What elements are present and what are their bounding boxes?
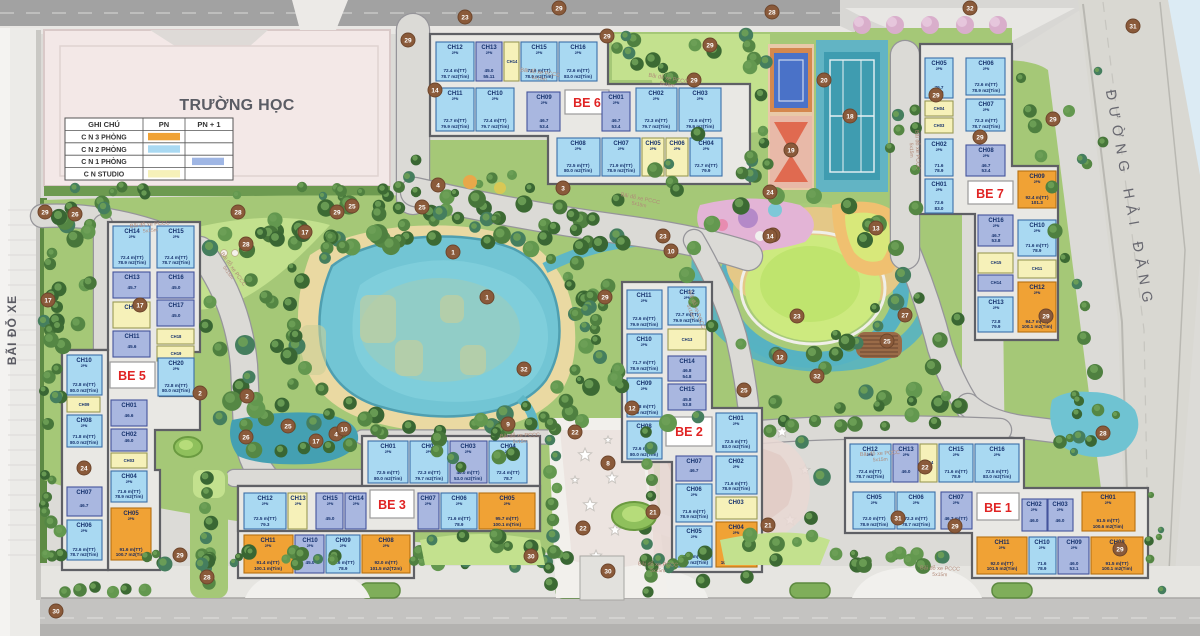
svg-text:46.0: 46.0 bbox=[1030, 518, 1039, 523]
svg-text:72.6 m(TT): 72.6 m(TT) bbox=[689, 118, 712, 123]
svg-text:79.9 m2(Tim): 79.9 m2(Tim) bbox=[441, 124, 469, 129]
svg-text:46.0: 46.0 bbox=[125, 438, 134, 443]
svg-text:CH11: CH11 bbox=[124, 334, 140, 340]
svg-text:2PN: 2PN bbox=[1071, 546, 1078, 550]
svg-text:53.4: 53.4 bbox=[540, 124, 549, 129]
svg-text:17: 17 bbox=[44, 298, 52, 305]
svg-text:32: 32 bbox=[813, 374, 821, 381]
svg-text:71.6 m(TT): 71.6 m(TT) bbox=[448, 516, 471, 521]
svg-text:BE 1: BE 1 bbox=[984, 501, 1012, 515]
svg-text:2PN: 2PN bbox=[983, 154, 990, 158]
svg-text:2PN: 2PN bbox=[691, 493, 698, 497]
svg-text:2PN: 2PN bbox=[641, 387, 648, 391]
svg-text:2PN: 2PN bbox=[993, 224, 1000, 228]
svg-text:25: 25 bbox=[883, 339, 891, 346]
svg-text:80.0 m2(Tim): 80.0 m2(Tim) bbox=[70, 440, 98, 445]
svg-text:72.5 m(TT): 72.5 m(TT) bbox=[254, 516, 277, 521]
svg-text:2PN: 2PN bbox=[1034, 180, 1041, 184]
svg-text:2PN: 2PN bbox=[486, 51, 493, 55]
svg-text:CH13: CH13 bbox=[124, 275, 140, 281]
svg-text:45.0: 45.0 bbox=[326, 516, 335, 521]
svg-text:10: 10 bbox=[340, 427, 348, 434]
svg-text:C N 2 PHÒNG: C N 2 PHÒNG bbox=[81, 145, 127, 154]
svg-text:PN + 1: PN + 1 bbox=[197, 120, 220, 129]
svg-text:24: 24 bbox=[80, 466, 88, 473]
svg-text:GHI CHÚ: GHI CHÚ bbox=[88, 120, 120, 129]
svg-text:78.9 m2(Tim): 78.9 m2(Tim) bbox=[972, 88, 1000, 93]
svg-text:BE 2: BE 2 bbox=[675, 425, 703, 439]
svg-text:32: 32 bbox=[966, 6, 974, 13]
svg-text:78.9: 78.9 bbox=[952, 474, 961, 479]
svg-text:2PN: 2PN bbox=[983, 67, 990, 71]
svg-text:72.7 m(TT): 72.7 m(TT) bbox=[444, 118, 467, 123]
svg-text:2PN: 2PN bbox=[465, 450, 472, 454]
svg-text:28: 28 bbox=[203, 575, 211, 582]
svg-text:83.0 m2(Tim): 83.0 m2(Tim) bbox=[722, 444, 750, 449]
svg-text:2PN: 2PN bbox=[126, 480, 133, 484]
svg-text:72.6 m(TT): 72.6 m(TT) bbox=[975, 82, 998, 87]
svg-text:21: 21 bbox=[649, 510, 657, 517]
svg-text:2PN: 2PN bbox=[128, 517, 135, 521]
svg-text:46.0: 46.0 bbox=[1056, 518, 1065, 523]
svg-text:29: 29 bbox=[706, 43, 714, 50]
svg-text:72.3 m(TT): 72.3 m(TT) bbox=[905, 516, 928, 521]
svg-text:29: 29 bbox=[555, 6, 563, 13]
svg-text:27: 27 bbox=[901, 313, 909, 320]
svg-text:28: 28 bbox=[234, 210, 242, 217]
svg-text:2PN: 2PN bbox=[1039, 546, 1046, 550]
svg-text:C N 3 PHÒNG: C N 3 PHÒNG bbox=[81, 132, 127, 141]
svg-text:CH11: CH11 bbox=[1032, 266, 1043, 271]
svg-text:45.0: 45.0 bbox=[172, 285, 181, 290]
svg-text:46.8: 46.8 bbox=[683, 368, 692, 373]
svg-text:BE 3: BE 3 bbox=[378, 498, 406, 512]
svg-text:2PN: 2PN bbox=[1031, 508, 1038, 512]
svg-text:30: 30 bbox=[604, 569, 612, 576]
svg-text:2PN: 2PN bbox=[383, 544, 390, 548]
svg-text:CH15: CH15 bbox=[679, 387, 695, 393]
svg-text:CH13: CH13 bbox=[682, 337, 693, 342]
svg-text:29: 29 bbox=[690, 78, 698, 85]
svg-text:4: 4 bbox=[436, 183, 440, 190]
svg-text:CH07: CH07 bbox=[76, 490, 92, 496]
svg-text:CH16: CH16 bbox=[168, 275, 184, 281]
svg-text:29: 29 bbox=[601, 295, 609, 302]
svg-text:2PN: 2PN bbox=[452, 97, 459, 101]
svg-text:17: 17 bbox=[301, 230, 309, 237]
svg-text:26: 26 bbox=[71, 212, 79, 219]
svg-text:CH14: CH14 bbox=[679, 359, 695, 365]
svg-text:78.9 m2(Tim): 78.9 m2(Tim) bbox=[680, 514, 708, 519]
svg-text:100.1 m(Tim): 100.1 m(Tim) bbox=[254, 566, 282, 571]
svg-text:78.9 m2(Tim): 78.9 m2(Tim) bbox=[115, 494, 143, 499]
svg-text:83.0: 83.0 bbox=[935, 206, 944, 211]
svg-text:29: 29 bbox=[1116, 547, 1124, 554]
svg-text:46.7: 46.7 bbox=[80, 503, 89, 508]
svg-text:14: 14 bbox=[431, 88, 439, 95]
svg-text:29: 29 bbox=[176, 553, 184, 560]
svg-text:29: 29 bbox=[333, 210, 341, 217]
svg-text:72.3 m(TT): 72.3 m(TT) bbox=[645, 118, 668, 123]
svg-text:80.0 m2(Tim): 80.0 m2(Tim) bbox=[162, 388, 190, 393]
svg-text:5x15m: 5x15m bbox=[650, 568, 665, 575]
svg-text:53.4: 53.4 bbox=[982, 168, 991, 173]
svg-text:5x15m: 5x15m bbox=[932, 572, 947, 579]
svg-text:2PN: 2PN bbox=[353, 502, 360, 506]
svg-text:2PN: 2PN bbox=[295, 502, 302, 506]
svg-text:53.0 m2(Tim): 53.0 m2(Tim) bbox=[454, 476, 482, 481]
svg-text:CH09: CH09 bbox=[79, 402, 90, 407]
svg-text:78.7 m2(Tim): 78.7 m2(Tim) bbox=[972, 124, 1000, 129]
svg-text:45.0: 45.0 bbox=[172, 313, 181, 318]
svg-text:100.1 m2(Tim): 100.1 m2(Tim) bbox=[1102, 566, 1133, 571]
svg-text:100.1 m2(Tim): 100.1 m2(Tim) bbox=[1022, 324, 1053, 329]
svg-text:46.0: 46.0 bbox=[902, 469, 911, 474]
svg-text:2PN: 2PN bbox=[81, 364, 88, 368]
svg-text:22: 22 bbox=[571, 430, 579, 437]
svg-text:46.7: 46.7 bbox=[690, 468, 699, 473]
svg-text:TRƯỜNG HỌC: TRƯỜNG HỌC bbox=[179, 95, 294, 114]
svg-text:78.9 m2(Tim): 78.9 m2(Tim) bbox=[630, 366, 658, 371]
svg-text:100.1 m(Tim): 100.1 m(Tim) bbox=[493, 522, 521, 527]
svg-text:2PN: 2PN bbox=[575, 147, 582, 151]
svg-text:CH03: CH03 bbox=[728, 500, 744, 506]
svg-text:72.3 m(TT): 72.3 m(TT) bbox=[418, 470, 441, 475]
svg-text:2PN: 2PN bbox=[983, 108, 990, 112]
svg-text:C N 1 PHÒNG: C N 1 PHÒNG bbox=[81, 157, 127, 166]
svg-text:CH15: CH15 bbox=[991, 260, 1002, 265]
svg-text:80.0 m2(Tim): 80.0 m2(Tim) bbox=[374, 476, 402, 481]
svg-text:2: 2 bbox=[198, 391, 202, 398]
svg-text:CH14: CH14 bbox=[507, 59, 518, 64]
svg-text:2PN: 2PN bbox=[733, 422, 740, 426]
svg-text:29: 29 bbox=[1042, 314, 1050, 321]
svg-text:2PN: 2PN bbox=[993, 306, 1000, 310]
svg-text:2PN: 2PN bbox=[953, 501, 960, 505]
svg-text:2PN: 2PN bbox=[913, 501, 920, 505]
svg-text:2PN: 2PN bbox=[903, 453, 910, 457]
svg-text:72.3 m(TT): 72.3 m(TT) bbox=[975, 118, 998, 123]
svg-text:45.6: 45.6 bbox=[128, 344, 137, 349]
svg-text:101.3: 101.3 bbox=[1031, 200, 1043, 205]
svg-text:CH03: CH03 bbox=[124, 458, 135, 463]
svg-text:2PN: 2PN bbox=[1057, 508, 1064, 512]
svg-text:25: 25 bbox=[348, 204, 356, 211]
svg-text:1: 1 bbox=[485, 295, 489, 302]
svg-text:30: 30 bbox=[527, 554, 535, 561]
svg-text:2PN: 2PN bbox=[733, 465, 740, 469]
svg-text:79.9 m2(Tim): 79.9 m2(Tim) bbox=[630, 322, 658, 327]
svg-text:53.1: 53.1 bbox=[1070, 566, 1079, 571]
svg-text:22: 22 bbox=[921, 465, 929, 472]
svg-text:2PN: 2PN bbox=[456, 502, 463, 506]
svg-text:78.7 m2(Tim): 78.7 m2(Tim) bbox=[902, 522, 930, 527]
svg-text:CH19: CH19 bbox=[171, 351, 182, 356]
svg-text:92.0 m(TT): 92.0 m(TT) bbox=[375, 560, 398, 565]
svg-text:55.11: 55.11 bbox=[483, 74, 495, 79]
svg-text:29: 29 bbox=[976, 135, 984, 142]
svg-text:2PN: 2PN bbox=[653, 97, 660, 101]
svg-text:46.6: 46.6 bbox=[125, 413, 134, 418]
svg-text:28: 28 bbox=[768, 10, 776, 17]
svg-text:78.7 m2(Tim): 78.7 m2(Tim) bbox=[441, 74, 469, 79]
svg-text:CH17: CH17 bbox=[168, 303, 184, 309]
svg-text:2PN: 2PN bbox=[129, 235, 136, 239]
svg-text:79.7 m2(Tim): 79.7 m2(Tim) bbox=[415, 476, 443, 481]
svg-text:2PN: 2PN bbox=[618, 147, 625, 151]
svg-text:78.9: 78.9 bbox=[935, 168, 944, 173]
svg-text:CH18: CH18 bbox=[171, 334, 182, 339]
svg-text:45.7: 45.7 bbox=[128, 285, 137, 290]
svg-text:78.9: 78.9 bbox=[455, 522, 464, 527]
svg-text:79.7 m2(Tim): 79.7 m2(Tim) bbox=[481, 124, 509, 129]
svg-text:2PN: 2PN bbox=[1034, 229, 1041, 233]
svg-text:19: 19 bbox=[787, 148, 795, 155]
svg-text:83.0 m2(Tim): 83.0 m2(Tim) bbox=[564, 74, 592, 79]
svg-text:2PN: 2PN bbox=[697, 97, 704, 101]
svg-text:101.5 m2(Tim): 101.5 m2(Tim) bbox=[987, 566, 1018, 571]
svg-text:30: 30 bbox=[52, 609, 60, 616]
svg-text:53.8: 53.8 bbox=[683, 402, 692, 407]
svg-text:2PN: 2PN bbox=[340, 544, 347, 548]
svg-text:2PN: 2PN bbox=[994, 453, 1001, 457]
svg-text:CH03: CH03 bbox=[934, 123, 945, 128]
svg-text:53.4: 53.4 bbox=[612, 124, 621, 129]
svg-text:2PN: 2PN bbox=[999, 546, 1006, 550]
svg-text:18: 18 bbox=[846, 114, 854, 121]
svg-text:80.0 m2(Tim): 80.0 m2(Tim) bbox=[70, 388, 98, 393]
svg-text:78.9 m2(Tim): 78.9 m2(Tim) bbox=[722, 486, 750, 491]
svg-text:78.9 m2(Tim): 78.9 m2(Tim) bbox=[118, 260, 146, 265]
svg-text:22: 22 bbox=[579, 526, 587, 533]
svg-text:BÃI ĐỖ XE: BÃI ĐỖ XE bbox=[4, 295, 19, 365]
svg-text:24: 24 bbox=[766, 190, 774, 197]
svg-text:46.7: 46.7 bbox=[540, 118, 549, 123]
svg-text:2PN: 2PN bbox=[674, 147, 681, 151]
svg-text:72.6 m(TT): 72.6 m(TT) bbox=[567, 68, 590, 73]
svg-text:5x15m: 5x15m bbox=[908, 143, 915, 158]
svg-text:79.7 m2(Tim): 79.7 m2(Tim) bbox=[642, 124, 670, 129]
svg-text:83.0 m2(Tim): 83.0 m2(Tim) bbox=[983, 474, 1011, 479]
svg-text:2PN: 2PN bbox=[936, 67, 943, 71]
svg-text:C N STUDIO: C N STUDIO bbox=[84, 172, 125, 179]
svg-text:72.4 m(TT): 72.4 m(TT) bbox=[497, 470, 520, 475]
svg-text:2PN: 2PN bbox=[385, 450, 392, 454]
svg-text:BE 7: BE 7 bbox=[976, 187, 1004, 201]
svg-text:2PN: 2PN bbox=[691, 535, 698, 539]
svg-text:2PN: 2PN bbox=[81, 424, 88, 428]
svg-text:45.0: 45.0 bbox=[485, 68, 494, 73]
svg-text:2PN: 2PN bbox=[452, 51, 459, 55]
svg-text:12: 12 bbox=[628, 406, 636, 413]
svg-text:78.9: 78.9 bbox=[1038, 566, 1047, 571]
svg-text:26: 26 bbox=[242, 435, 250, 442]
svg-text:2PN: 2PN bbox=[307, 544, 314, 548]
svg-text:72.8 m(TT): 72.8 m(TT) bbox=[73, 382, 96, 387]
svg-text:2: 2 bbox=[245, 394, 249, 401]
svg-text:91.4 m(TT): 91.4 m(TT) bbox=[257, 560, 280, 565]
svg-text:79.3: 79.3 bbox=[261, 522, 270, 527]
svg-text:21: 21 bbox=[764, 523, 772, 530]
svg-text:2PN: 2PN bbox=[871, 501, 878, 505]
svg-text:CH01: CH01 bbox=[121, 403, 137, 409]
svg-text:2PN: 2PN bbox=[265, 544, 272, 548]
svg-text:78.9: 78.9 bbox=[1033, 248, 1042, 253]
svg-text:PN: PN bbox=[159, 120, 169, 129]
svg-text:23: 23 bbox=[659, 234, 667, 241]
svg-text:17: 17 bbox=[312, 439, 320, 446]
svg-text:2PN: 2PN bbox=[936, 188, 943, 192]
svg-text:20: 20 bbox=[820, 78, 828, 85]
svg-text:72.5 m(TT): 72.5 m(TT) bbox=[377, 470, 400, 475]
svg-text:78.9 m2(Tim): 78.9 m2(Tim) bbox=[607, 168, 635, 173]
svg-text:25: 25 bbox=[284, 424, 292, 431]
svg-text:46.7: 46.7 bbox=[612, 118, 621, 123]
svg-text:3: 3 bbox=[561, 186, 565, 193]
svg-text:2PN: 2PN bbox=[173, 367, 180, 371]
svg-text:2PN: 2PN bbox=[641, 343, 648, 347]
svg-text:8: 8 bbox=[606, 461, 610, 468]
svg-text:5x15m: 5x15m bbox=[513, 439, 528, 446]
svg-text:CH04: CH04 bbox=[934, 106, 945, 111]
svg-text:78.9 m2(Tim): 78.9 m2(Tim) bbox=[860, 522, 888, 527]
svg-text:CH07: CH07 bbox=[686, 459, 702, 465]
svg-text:13: 13 bbox=[872, 226, 880, 233]
svg-text:78.7 m2(Tim): 78.7 m2(Tim) bbox=[856, 474, 884, 479]
svg-text:2PN: 2PN bbox=[703, 147, 710, 151]
svg-text:72.0 m(TT): 72.0 m(TT) bbox=[863, 516, 886, 521]
svg-text:1: 1 bbox=[451, 250, 455, 257]
svg-text:72.6 m(TT): 72.6 m(TT) bbox=[633, 316, 656, 321]
svg-text:53.8: 53.8 bbox=[992, 238, 1001, 243]
svg-text:71.7 m(TT): 71.7 m(TT) bbox=[633, 360, 656, 365]
svg-text:12: 12 bbox=[776, 355, 784, 362]
svg-text:78.9: 78.9 bbox=[339, 566, 348, 571]
svg-text:2PN: 2PN bbox=[504, 502, 511, 506]
svg-text:72.4 m(TT): 72.4 m(TT) bbox=[484, 118, 507, 123]
svg-text:78.7: 78.7 bbox=[504, 476, 513, 481]
svg-text:72.6: 72.6 bbox=[935, 200, 944, 205]
svg-text:78.7 m2(Tim): 78.7 m2(Tim) bbox=[162, 260, 190, 265]
svg-text:2PN: 2PN bbox=[733, 531, 740, 535]
svg-text:71.8 m(TT): 71.8 m(TT) bbox=[73, 434, 96, 439]
svg-text:BE 6: BE 6 bbox=[573, 96, 601, 110]
svg-text:25: 25 bbox=[418, 205, 426, 212]
svg-text:2PN: 2PN bbox=[81, 529, 88, 533]
svg-text:2PN: 2PN bbox=[953, 453, 960, 457]
svg-text:2PN: 2PN bbox=[541, 101, 548, 105]
svg-text:80.0 m2(Tim): 80.0 m2(Tim) bbox=[564, 168, 592, 173]
svg-text:2PN: 2PN bbox=[936, 148, 943, 152]
svg-text:31: 31 bbox=[1129, 24, 1137, 31]
svg-text:23: 23 bbox=[793, 314, 801, 321]
svg-text:29: 29 bbox=[404, 38, 412, 45]
svg-text:31: 31 bbox=[894, 516, 902, 523]
svg-text:2PN: 2PN bbox=[492, 97, 499, 101]
svg-text:CH14: CH14 bbox=[991, 280, 1002, 285]
svg-text:72.4 m(TT): 72.4 m(TT) bbox=[444, 68, 467, 73]
svg-text:101.5 m2(T2m): 101.5 m2(T2m) bbox=[370, 566, 402, 571]
svg-text:2PN: 2PN bbox=[536, 51, 543, 55]
svg-text:2PN: 2PN bbox=[1105, 501, 1112, 505]
svg-text:2PN: 2PN bbox=[327, 502, 334, 506]
svg-text:29: 29 bbox=[932, 93, 940, 100]
svg-text:29: 29 bbox=[41, 210, 49, 217]
svg-text:2PN: 2PN bbox=[641, 299, 648, 303]
svg-text:BE 5: BE 5 bbox=[118, 369, 146, 383]
svg-text:79.9: 79.9 bbox=[702, 168, 711, 173]
svg-text:95.7 m(TT): 95.7 m(TT) bbox=[496, 516, 519, 521]
svg-text:2PN: 2PN bbox=[613, 101, 620, 105]
svg-text:2PN: 2PN bbox=[425, 502, 432, 506]
svg-text:25: 25 bbox=[740, 388, 748, 395]
svg-text:78.7 m2(Tim): 78.7 m2(Tim) bbox=[70, 552, 98, 557]
svg-text:17: 17 bbox=[136, 303, 144, 310]
svg-text:28: 28 bbox=[242, 242, 250, 249]
svg-text:32: 32 bbox=[520, 367, 528, 374]
svg-text:28: 28 bbox=[1099, 431, 1107, 438]
svg-text:9: 9 bbox=[506, 422, 510, 429]
svg-text:2PN: 2PN bbox=[575, 51, 582, 55]
svg-text:2PN: 2PN bbox=[173, 235, 180, 239]
svg-text:2PN: 2PN bbox=[262, 502, 269, 506]
svg-text:91.5 m(TT): 91.5 m(TT) bbox=[1097, 518, 1120, 523]
svg-text:2PN: 2PN bbox=[1034, 291, 1041, 295]
svg-text:2PN: 2PN bbox=[650, 147, 657, 151]
svg-text:23: 23 bbox=[461, 15, 469, 22]
svg-text:5x15m: 5x15m bbox=[873, 457, 888, 464]
svg-text:14: 14 bbox=[766, 234, 774, 241]
svg-text:29: 29 bbox=[603, 34, 611, 41]
svg-text:29: 29 bbox=[951, 524, 959, 531]
svg-text:10: 10 bbox=[667, 249, 675, 256]
svg-text:54.8: 54.8 bbox=[683, 374, 692, 379]
svg-text:79.9: 79.9 bbox=[992, 324, 1001, 329]
svg-text:100.6 m2(Tim): 100.6 m2(Tim) bbox=[1093, 524, 1124, 529]
svg-text:29: 29 bbox=[1049, 117, 1057, 124]
